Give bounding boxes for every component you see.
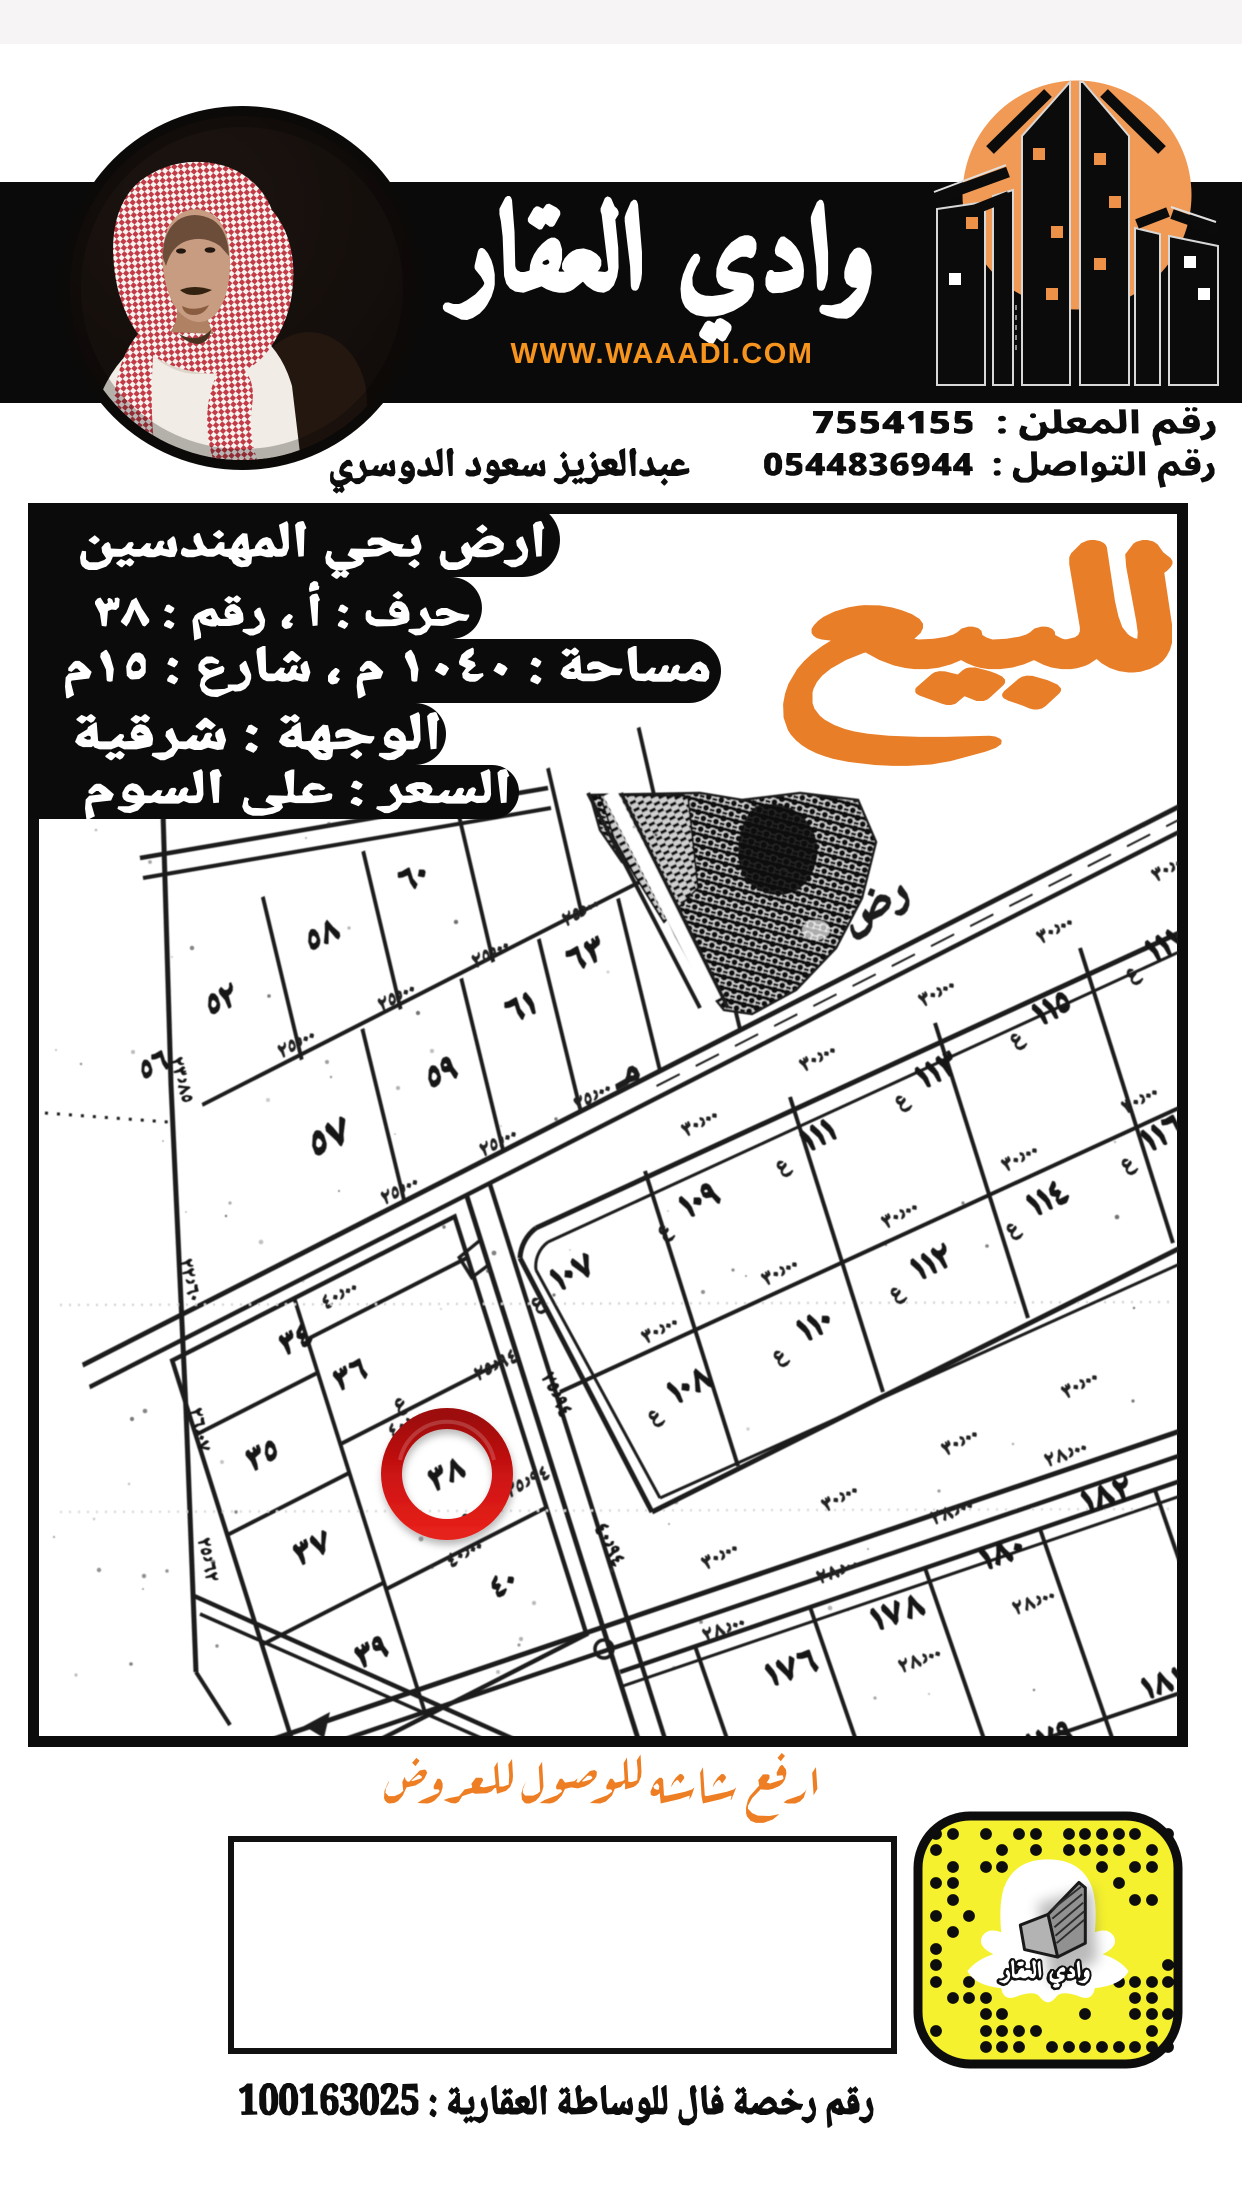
- svg-text:WWW.WAAADI.COM: WWW.WAAADI.COM: [511, 338, 814, 370]
